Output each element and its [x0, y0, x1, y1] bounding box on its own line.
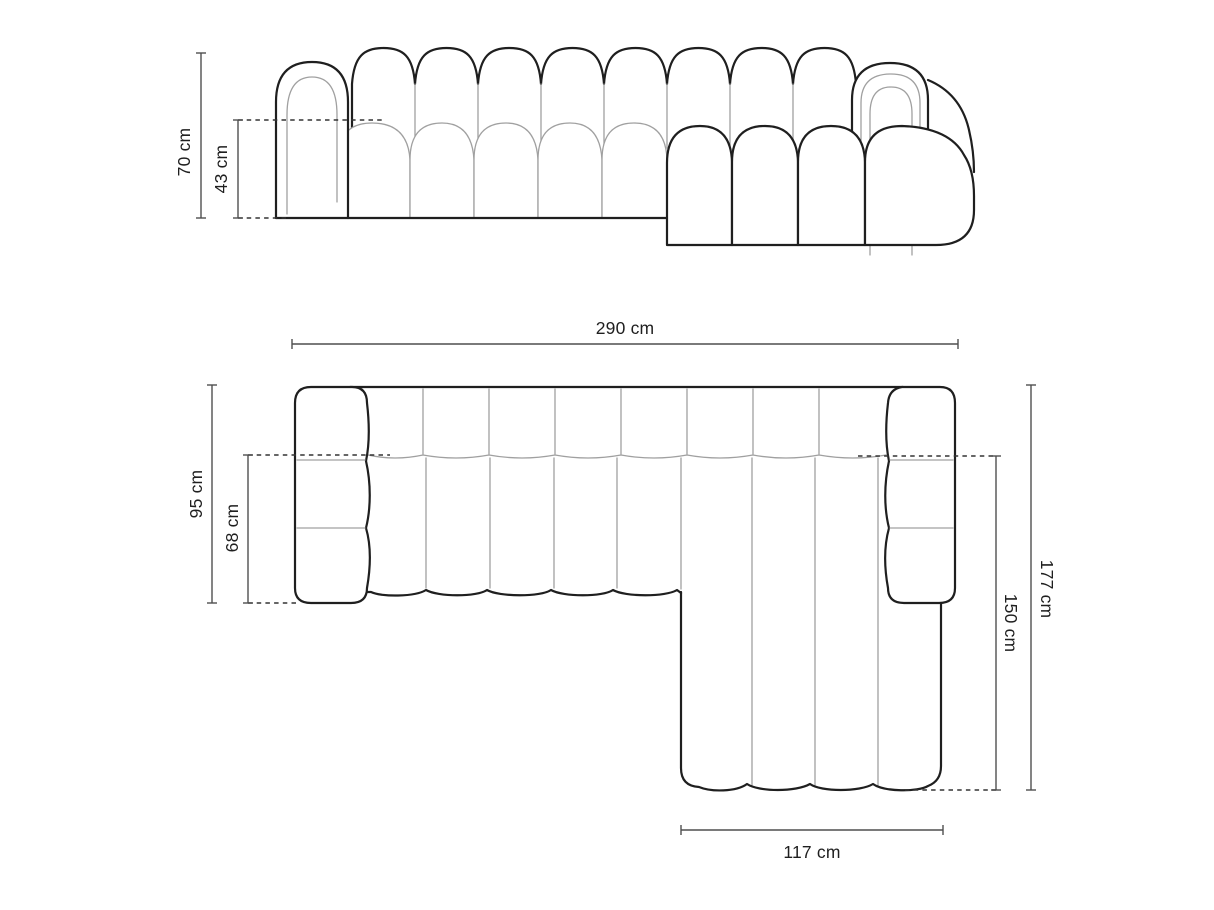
seat-depth-label: 68 cm: [222, 504, 242, 553]
top-plan-view: 290 cm 95 cm 68 cm 177 cm: [186, 318, 1057, 862]
overall-width-label: 290 cm: [596, 318, 655, 338]
left-arm-plan-outline: [295, 387, 370, 603]
sofa-dimension-diagram: 70 cm 43 cm: [0, 0, 1214, 910]
dimension-overall-depth: 177 cm: [1026, 385, 1057, 790]
chaise-cushions-front: [667, 126, 974, 245]
plan-body-fill: [353, 387, 941, 787]
seat-height-label: 43 cm: [211, 145, 231, 194]
diagram-canvas: 70 cm 43 cm: [0, 0, 1214, 910]
body-depth-label: 95 cm: [186, 470, 206, 519]
dimension-body-depth: 95 cm: [186, 385, 217, 603]
front-elevation-view: 70 cm 43 cm: [174, 48, 974, 255]
right-arm-plan-outline: [885, 387, 955, 603]
seat-cushions-front: [338, 123, 667, 218]
chaise-depth-label: 150 cm: [1001, 594, 1021, 653]
dimension-overall-height: 70 cm: [174, 53, 206, 218]
right-arm-plan: [885, 387, 955, 603]
overall-height-label: 70 cm: [174, 128, 194, 177]
dimension-overall-width: 290 cm: [292, 318, 958, 349]
dimension-chaise-width: 117 cm: [681, 825, 943, 862]
left-arm-plan: [295, 387, 370, 603]
overall-depth-label: 177 cm: [1037, 560, 1057, 619]
chaise-width-label: 117 cm: [783, 842, 840, 862]
left-arm-front: [276, 62, 348, 218]
